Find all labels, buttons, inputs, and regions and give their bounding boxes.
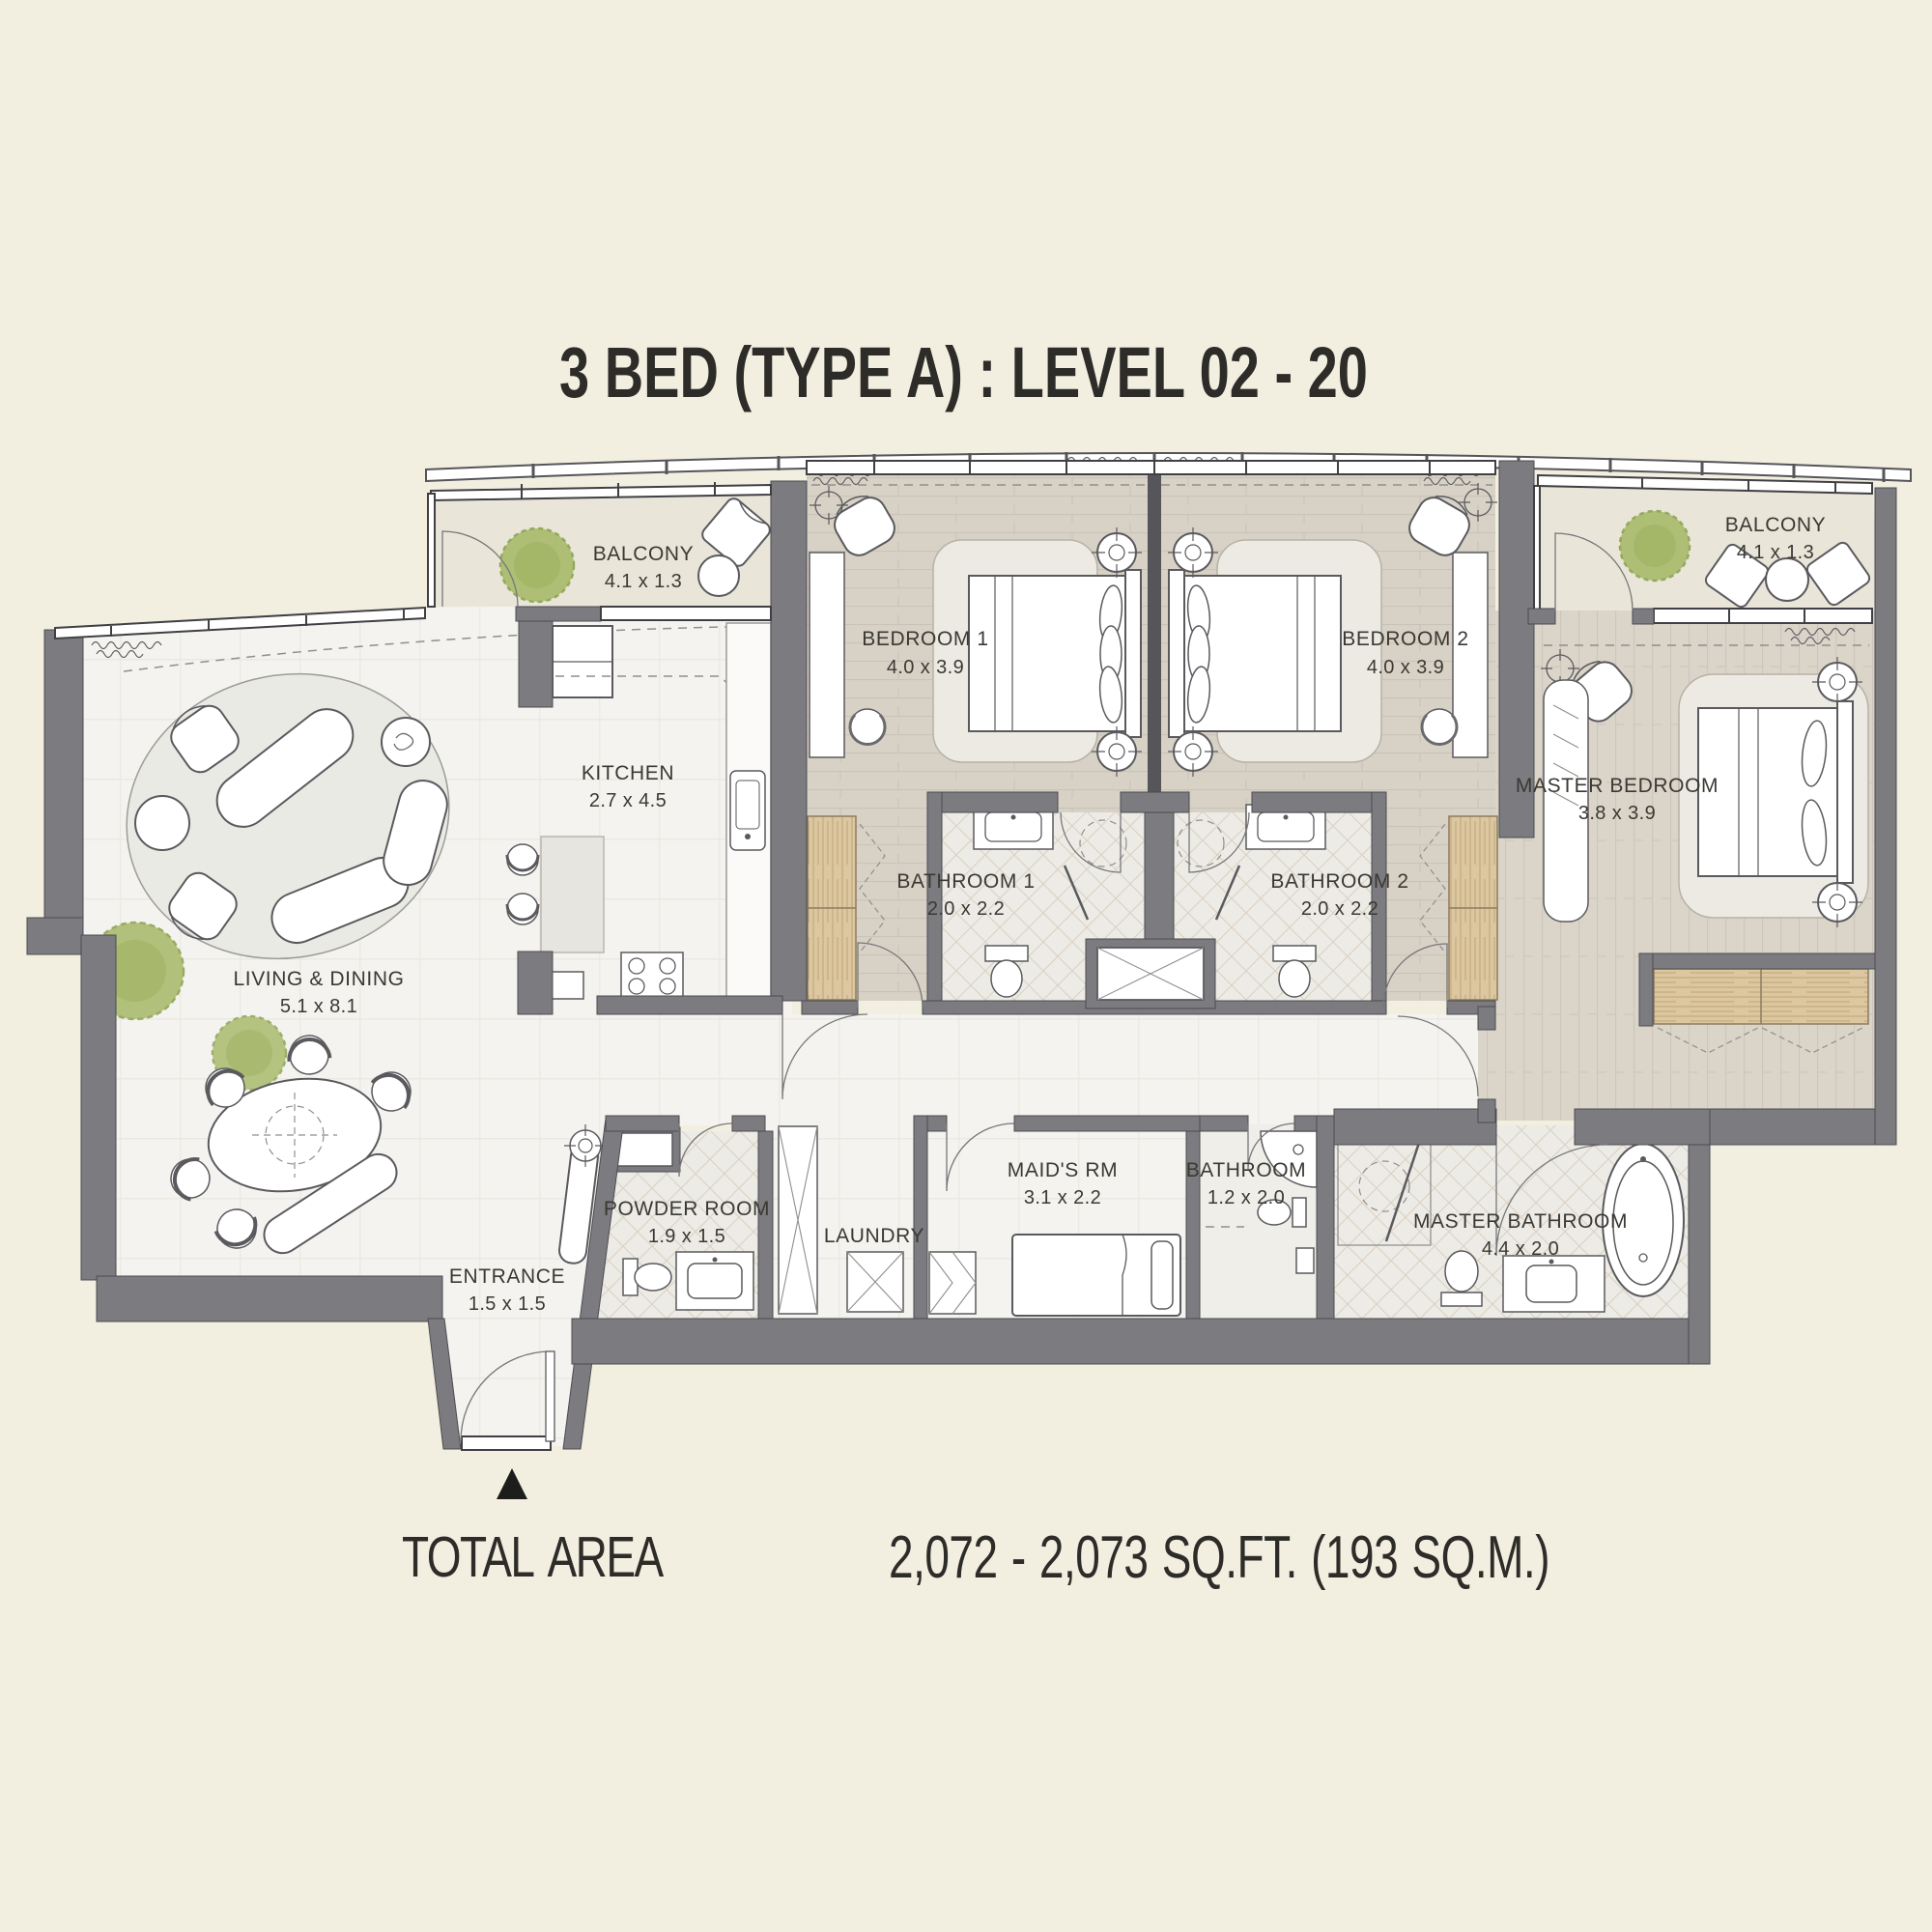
svg-text:MASTER BATHROOM: MASTER BATHROOM xyxy=(1413,1210,1628,1233)
svg-text:4.1 x 1.3: 4.1 x 1.3 xyxy=(1737,542,1814,563)
svg-text:2.0 x 2.2: 2.0 x 2.2 xyxy=(1301,898,1378,920)
svg-text:1.2 x 2.0: 1.2 x 2.0 xyxy=(1207,1187,1285,1208)
svg-text:2,072 - 2,073 SQ.FT. (193 SQ.M: 2,072 - 2,073 SQ.FT. (193 SQ.M.) xyxy=(889,1523,1549,1590)
svg-text:BEDROOM 1: BEDROOM 1 xyxy=(862,628,988,650)
svg-text:BATHROOM 2: BATHROOM 2 xyxy=(1270,870,1408,893)
svg-text:LIVING & DINING: LIVING & DINING xyxy=(233,968,404,990)
svg-text:5.1 x 8.1: 5.1 x 8.1 xyxy=(280,996,357,1017)
svg-text:4.0 x 3.9: 4.0 x 3.9 xyxy=(1367,657,1444,678)
svg-text:MASTER BEDROOM: MASTER BEDROOM xyxy=(1516,775,1719,797)
svg-text:BALCONY: BALCONY xyxy=(1725,514,1827,536)
svg-text:4.4 x 2.0: 4.4 x 2.0 xyxy=(1482,1238,1559,1260)
svg-text:1.9 x 1.5: 1.9 x 1.5 xyxy=(648,1226,725,1247)
svg-text:LAUNDRY: LAUNDRY xyxy=(824,1225,924,1247)
svg-text:BATHROOM: BATHROOM xyxy=(1186,1159,1307,1181)
svg-text:4.1 x 1.3: 4.1 x 1.3 xyxy=(605,571,682,592)
svg-text:4.0 x 3.9: 4.0 x 3.9 xyxy=(887,657,964,678)
svg-text:ENTRANCE: ENTRANCE xyxy=(449,1265,565,1288)
svg-text:BEDROOM 2: BEDROOM 2 xyxy=(1342,628,1468,650)
svg-text:1.5 x 1.5: 1.5 x 1.5 xyxy=(469,1293,546,1315)
svg-text:MAID'S RM: MAID'S RM xyxy=(1008,1159,1118,1181)
svg-text:2.7 x 4.5: 2.7 x 4.5 xyxy=(589,790,667,811)
svg-text:BALCONY: BALCONY xyxy=(593,543,695,565)
svg-text:3.8 x 3.9: 3.8 x 3.9 xyxy=(1578,803,1656,824)
svg-text:2.0 x 2.2: 2.0 x 2.2 xyxy=(927,898,1005,920)
svg-text:3 BED (TYPE A) : LEVEL 02 - 20: 3 BED (TYPE A) : LEVEL 02 - 20 xyxy=(559,332,1368,412)
svg-text:TOTAL AREA: TOTAL AREA xyxy=(402,1525,665,1589)
svg-text:3.1 x 2.2: 3.1 x 2.2 xyxy=(1024,1187,1101,1208)
svg-text:KITCHEN: KITCHEN xyxy=(582,762,674,784)
svg-text:BATHROOM 1: BATHROOM 1 xyxy=(896,870,1035,893)
svg-text:POWDER ROOM: POWDER ROOM xyxy=(604,1198,770,1220)
